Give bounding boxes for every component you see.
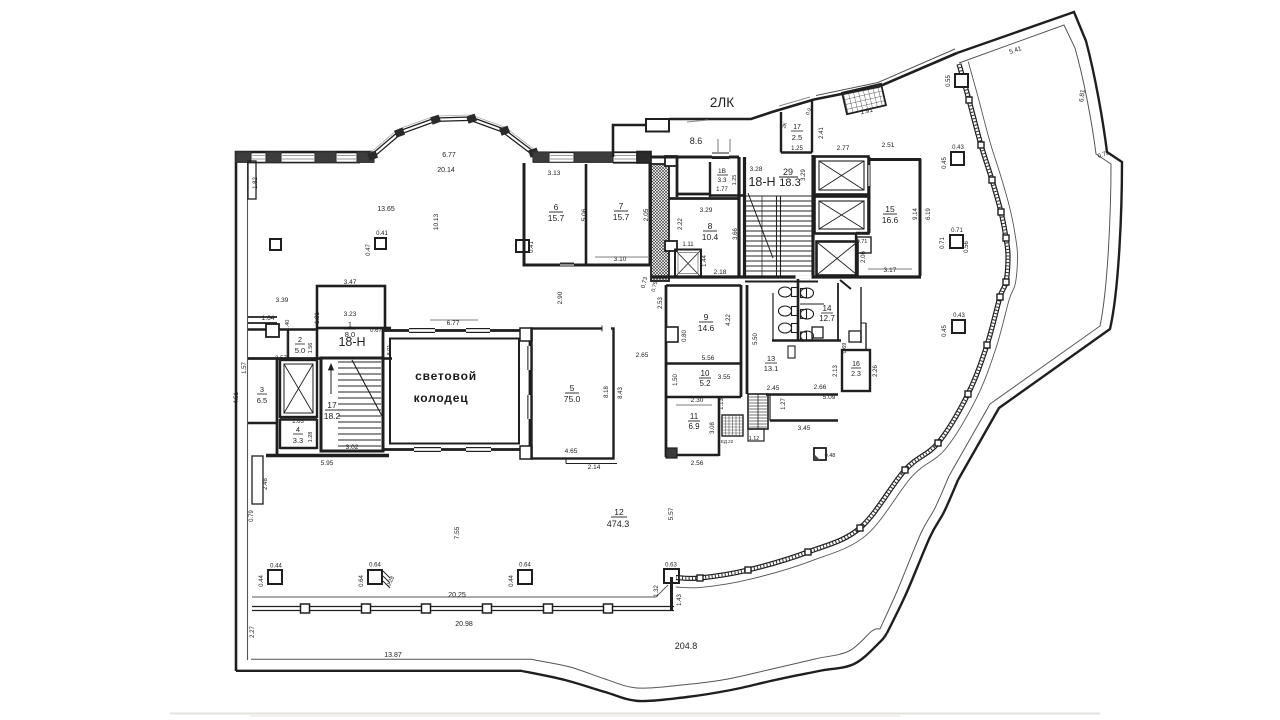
svg-text:6.77: 6.77 [447, 320, 460, 327]
svg-text:20.25: 20.25 [448, 592, 466, 599]
svg-text:12: 12 [614, 507, 624, 517]
svg-text:11: 11 [690, 412, 699, 421]
svg-text:3.13: 3.13 [548, 170, 561, 177]
svg-text:29: 29 [783, 167, 793, 177]
svg-text:1: 1 [348, 320, 352, 329]
svg-text:3.39: 3.39 [276, 297, 289, 304]
svg-text:8: 8 [708, 221, 713, 231]
svg-text:3.08: 3.08 [710, 422, 716, 434]
svg-text:2.30: 2.30 [691, 397, 704, 404]
svg-text:5.2: 5.2 [699, 379, 711, 388]
svg-text:1.81: 1.81 [315, 312, 321, 324]
svg-text:2.06: 2.06 [861, 251, 867, 263]
svg-text:7.55: 7.55 [454, 526, 461, 539]
svg-text:13.87: 13.87 [384, 652, 402, 659]
svg-text:2.48: 2.48 [263, 478, 269, 490]
svg-text:2.05: 2.05 [643, 208, 650, 221]
svg-text:2.41: 2.41 [819, 127, 825, 139]
svg-text:0.44: 0.44 [259, 575, 265, 587]
svg-text:3.29: 3.29 [801, 169, 807, 181]
svg-text:ЕД.22: ЕД.22 [721, 439, 734, 444]
svg-text:14.6: 14.6 [698, 323, 715, 333]
svg-text:2.56: 2.56 [691, 460, 704, 467]
svg-text:3.17: 3.17 [884, 267, 897, 274]
svg-text:колодец: колодец [414, 391, 469, 405]
svg-text:0.44: 0.44 [270, 564, 282, 570]
svg-text:6.77: 6.77 [442, 152, 456, 159]
svg-text:3: 3 [260, 385, 264, 394]
svg-text:0.71: 0.71 [857, 239, 868, 245]
svg-text:1.57: 1.57 [242, 362, 248, 374]
svg-text:2.3: 2.3 [851, 371, 861, 378]
svg-text:1.13: 1.13 [719, 398, 725, 410]
svg-text:13.65: 13.65 [377, 206, 395, 213]
svg-text:1.12: 1.12 [749, 436, 760, 442]
svg-text:16.6: 16.6 [882, 215, 899, 225]
svg-text:10.13: 10.13 [433, 213, 440, 230]
svg-text:3.28: 3.28 [750, 166, 763, 173]
svg-text:75.0: 75.0 [564, 394, 581, 404]
svg-text:17: 17 [327, 400, 337, 410]
svg-text:0.63: 0.63 [665, 563, 677, 569]
svg-text:5.09: 5.09 [823, 394, 836, 401]
svg-text:12.7: 12.7 [819, 314, 835, 323]
svg-text:16: 16 [852, 361, 860, 368]
svg-text:0.45: 0.45 [942, 157, 948, 169]
svg-text:0.44: 0.44 [509, 575, 515, 587]
svg-text:5.50: 5.50 [753, 333, 759, 345]
svg-text:1.25: 1.25 [791, 146, 803, 152]
svg-text:9: 9 [704, 312, 709, 322]
svg-text:1.28: 1.28 [308, 432, 314, 443]
svg-text:световой: световой [415, 369, 477, 383]
svg-text:1.63: 1.63 [292, 419, 304, 425]
svg-text:5.56: 5.56 [702, 355, 715, 362]
svg-text:0.43: 0.43 [953, 313, 965, 319]
svg-text:1.25: 1.25 [732, 175, 738, 186]
svg-text:2.90: 2.90 [557, 291, 564, 304]
svg-text:1.11: 1.11 [682, 242, 694, 248]
svg-text:6.19: 6.19 [926, 208, 932, 220]
svg-text:1.27: 1.27 [781, 398, 787, 410]
svg-text:2: 2 [298, 335, 302, 344]
svg-text:2.13: 2.13 [833, 365, 839, 377]
svg-text:6.9: 6.9 [688, 422, 700, 431]
svg-text:2.22: 2.22 [678, 218, 684, 230]
svg-text:8.43: 8.43 [618, 387, 624, 399]
svg-text:20.98: 20.98 [455, 621, 473, 628]
svg-text:2.45: 2.45 [767, 385, 780, 392]
svg-text:0.67: 0.67 [370, 328, 382, 334]
svg-text:7: 7 [619, 201, 624, 211]
svg-text:2.14: 2.14 [588, 464, 601, 471]
svg-text:2.53: 2.53 [658, 297, 664, 309]
svg-text:0.71: 0.71 [951, 228, 963, 234]
svg-text:18-Н: 18-Н [748, 175, 775, 189]
svg-text:17: 17 [793, 124, 801, 131]
svg-text:2ЛК: 2ЛК [710, 95, 734, 110]
svg-text:1В: 1В [718, 168, 726, 175]
svg-text:18.3: 18.3 [779, 177, 800, 189]
svg-text:4.65: 4.65 [565, 448, 578, 455]
svg-text:4: 4 [296, 425, 300, 434]
svg-text:2.5: 2.5 [792, 133, 802, 142]
svg-text:0.47: 0.47 [366, 244, 372, 256]
svg-text:3.23: 3.23 [344, 311, 357, 318]
svg-text:6: 6 [554, 202, 559, 212]
svg-text:1.77: 1.77 [716, 187, 728, 193]
svg-text:8.6: 8.6 [690, 136, 703, 146]
svg-text:0.79: 0.79 [249, 510, 255, 522]
svg-text:1.56: 1.56 [308, 343, 314, 354]
svg-text:15.7: 15.7 [548, 213, 565, 223]
svg-text:5: 5 [570, 383, 575, 393]
svg-text:15.7: 15.7 [613, 212, 630, 222]
svg-text:2.26: 2.26 [873, 365, 879, 377]
svg-text:15: 15 [885, 204, 895, 214]
svg-text:4.51: 4.51 [234, 392, 240, 404]
svg-text:3.47: 3.47 [344, 279, 357, 286]
svg-text:5.0: 5.0 [295, 346, 305, 355]
svg-text:6.5: 6.5 [257, 396, 267, 405]
svg-text:204.8: 204.8 [675, 641, 698, 651]
svg-text:3.66: 3.66 [733, 228, 739, 240]
svg-text:2.27: 2.27 [250, 626, 256, 638]
svg-text:18-Н: 18-Н [338, 335, 365, 349]
svg-text:20.14: 20.14 [437, 167, 455, 174]
svg-text:0.43: 0.43 [952, 145, 964, 151]
svg-text:13.1: 13.1 [764, 364, 779, 373]
svg-text:0.64: 0.64 [519, 563, 531, 569]
svg-text:5.06: 5.06 [581, 208, 588, 221]
svg-text:474.3: 474.3 [607, 519, 630, 529]
svg-text:3.3: 3.3 [293, 436, 303, 445]
svg-text:1.32: 1.32 [654, 585, 660, 597]
svg-text:0.55: 0.55 [946, 75, 952, 87]
svg-text:1.50: 1.50 [673, 374, 679, 386]
svg-text:0.41: 0.41 [376, 231, 388, 237]
svg-text:0.56: 0.56 [964, 241, 970, 253]
svg-text:3.45: 3.45 [798, 425, 811, 432]
svg-text:1.64: 1.64 [262, 315, 275, 322]
svg-text:14: 14 [823, 304, 832, 313]
svg-text:3.02: 3.02 [346, 444, 359, 451]
svg-text:0.64: 0.64 [359, 575, 365, 587]
svg-text:10.4: 10.4 [702, 232, 719, 242]
svg-text:4.22: 4.22 [726, 314, 732, 326]
svg-text:0.71: 0.71 [940, 237, 946, 249]
svg-text:5.95: 5.95 [321, 460, 334, 467]
svg-text:5.57: 5.57 [668, 507, 675, 520]
svg-text:1.40: 1.40 [285, 320, 291, 331]
svg-text:3.3: 3.3 [717, 177, 726, 184]
svg-text:0.48: 0.48 [825, 453, 836, 459]
svg-text:2.66: 2.66 [814, 384, 827, 391]
svg-text:1.44: 1.44 [702, 255, 708, 267]
svg-text:0.64: 0.64 [369, 563, 381, 569]
svg-text:18.2: 18.2 [324, 411, 341, 421]
svg-text:0.41: 0.41 [529, 241, 535, 253]
svg-text:2.77: 2.77 [837, 145, 850, 152]
svg-text:10: 10 [701, 369, 710, 378]
svg-text:0.80: 0.80 [682, 330, 688, 342]
svg-text:2.18: 2.18 [714, 269, 727, 276]
svg-text:2.65: 2.65 [636, 352, 649, 359]
svg-text:9.14: 9.14 [913, 208, 919, 220]
svg-text:3.29: 3.29 [700, 207, 713, 214]
svg-text:2.51: 2.51 [882, 142, 895, 149]
svg-text:0.45: 0.45 [942, 325, 948, 337]
svg-text:8.18: 8.18 [604, 386, 610, 398]
svg-text:3.55: 3.55 [718, 374, 731, 381]
svg-text:13: 13 [767, 354, 775, 363]
svg-text:1.43: 1.43 [677, 594, 683, 606]
